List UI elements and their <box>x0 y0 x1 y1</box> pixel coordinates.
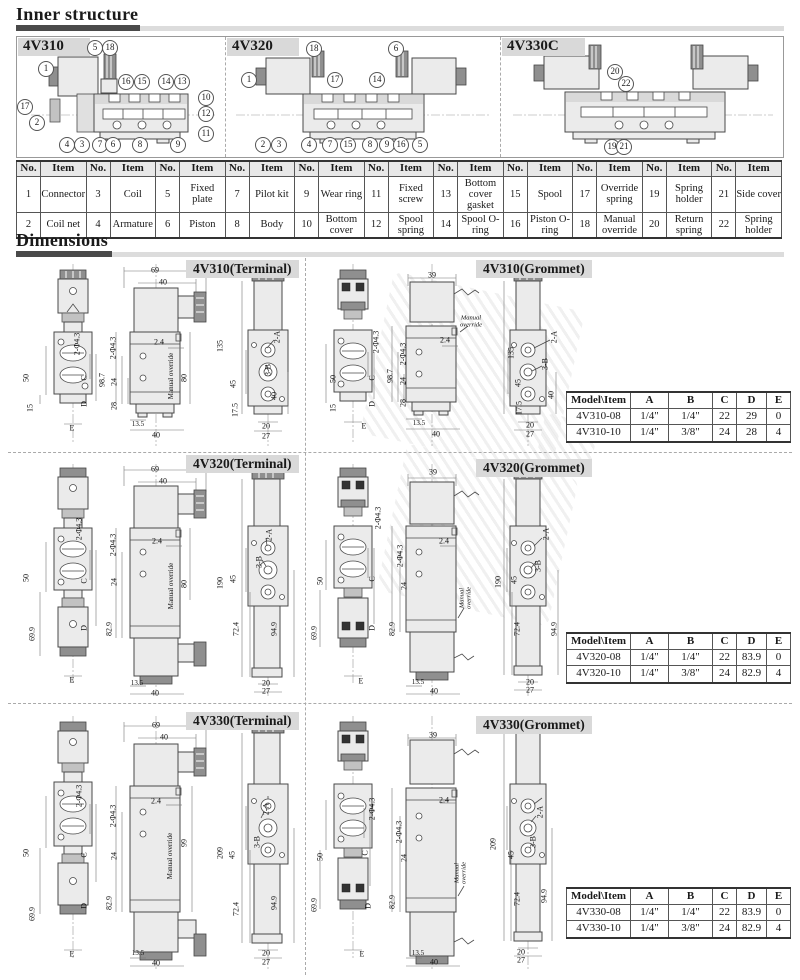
table-cell: 0 <box>766 650 790 666</box>
column-header: C <box>712 888 736 905</box>
table-cell: 1/4" <box>668 650 712 666</box>
dim-label: 39 <box>429 468 437 477</box>
model-table-4v310: Model\ItemABCDE4V310-081/4"1/4"222904V31… <box>566 391 791 443</box>
heading-bar-dark <box>16 25 140 31</box>
callout-13: 13 <box>174 74 190 90</box>
table-cell: 17 <box>573 176 597 212</box>
table-cell: 24 <box>712 666 736 683</box>
table-cell: 1 <box>17 176 41 212</box>
dim-label: 80 <box>180 580 189 588</box>
table-cell: 0 <box>766 409 790 425</box>
column-header: No. <box>295 161 319 176</box>
dim-label: 13.5 <box>132 949 144 957</box>
dim-label: 2-A <box>265 529 274 541</box>
callout-6: 6 <box>388 41 404 57</box>
table-cell: 83.9 <box>736 650 766 666</box>
dim-label: 40 <box>159 477 167 486</box>
callout-17: 17 <box>17 99 33 115</box>
dim-label: 72.4 <box>513 892 522 906</box>
panel-title-4v310-terminal: 4V310(Terminal) <box>186 260 299 278</box>
table-cell: Piston O-ring <box>527 212 573 238</box>
panel-title-4v320-terminal: 4V320(Terminal) <box>186 455 299 473</box>
section-title-inner-structure: Inner structure <box>16 4 138 25</box>
table-cell: 9 <box>295 176 319 212</box>
callout-4: 4 <box>301 137 317 153</box>
panel-separator-vertical <box>305 258 306 975</box>
callout-18: 18 <box>306 41 322 57</box>
table-row: 4V310-081/4"1/4"22290 <box>567 409 791 425</box>
diagram-label: 4V310 <box>18 38 90 56</box>
callout-2: 2 <box>255 137 271 153</box>
dim-label: 2.4 <box>151 797 161 806</box>
dim-label: 24 <box>110 852 119 860</box>
table-cell: 82.9 <box>736 666 766 683</box>
table-cell: 10 <box>295 212 319 238</box>
dim-label: 27 <box>517 956 525 965</box>
dimension-drawing <box>308 258 560 452</box>
table-cell: Spool spring <box>388 212 434 238</box>
dim-label: 82.9 <box>105 622 114 636</box>
callout-12: 12 <box>198 106 214 122</box>
column-header: No. <box>712 161 736 176</box>
dim-label: 45 <box>229 575 238 583</box>
table-cell: Fixed plate <box>180 176 226 212</box>
dim-label: 94.9 <box>270 622 279 636</box>
inner-structure-box: 4V310 15181721615141 <box>16 36 784 158</box>
model-table-4v320: Model\ItemABCDE4V320-081/4"1/4"2283.904V… <box>566 632 791 684</box>
column-header: E <box>766 888 790 905</box>
callout-16: 16 <box>118 74 134 90</box>
dim-label: 2-Φ4.3 <box>109 805 118 828</box>
table-cell: 1/4" <box>630 666 668 683</box>
diagram-label: 4V320 <box>227 38 299 56</box>
callout-15: 15 <box>134 74 150 90</box>
dim-label: 24 <box>399 377 408 385</box>
callout-2: 2 <box>29 115 45 131</box>
callout-22: 22 <box>618 76 634 92</box>
table-cell: 15 <box>503 176 527 212</box>
dim-label: 135 <box>216 340 225 352</box>
dim-label: 82.9 <box>388 622 397 636</box>
table-cell: 21 <box>712 176 736 212</box>
dim-label: 20 <box>526 421 534 430</box>
table-cell: 18 <box>573 212 597 238</box>
dim-label: 2-Φ4.3 <box>109 337 118 360</box>
callout-8: 8 <box>132 137 148 153</box>
dim-label: D <box>368 401 377 407</box>
table-cell: 3/8" <box>668 921 712 938</box>
dim-label: 72.4 <box>232 902 241 916</box>
table-row: 2Coil net4Armature6Piston8Body10Bottom c… <box>17 212 782 238</box>
table-cell: Spring holder <box>736 212 782 238</box>
dim-label: 15 <box>329 404 338 412</box>
dim-label: 27 <box>262 958 270 967</box>
callout-18: 18 <box>102 40 118 56</box>
dim-label: E <box>359 677 364 686</box>
dim-label: 69.9 <box>310 898 319 912</box>
dim-label: 3-B <box>253 836 262 848</box>
dim-label: 2.4 <box>439 537 449 546</box>
callout-9: 9 <box>170 137 186 153</box>
column-header: E <box>766 392 790 409</box>
dim-label: 13.5 <box>131 679 143 687</box>
dim-label: 27 <box>526 430 534 439</box>
dim-label: 13.5 <box>132 420 144 428</box>
callout-1: 1 <box>38 61 54 77</box>
table-cell: 24 <box>712 921 736 938</box>
callout-21: 21 <box>616 139 632 155</box>
dim-label: 99 <box>180 839 189 847</box>
table-cell: 4 <box>766 666 790 683</box>
dim-label: 13.5 <box>412 949 424 957</box>
dim-label: 2.4 <box>440 336 450 345</box>
table-cell: Spool <box>527 176 573 212</box>
dim-label: 69 <box>152 721 160 730</box>
dim-label: 2.4 <box>439 796 449 805</box>
table-cell: 1/4" <box>630 905 668 921</box>
table-cell: Body <box>249 212 295 238</box>
dim-label: 50 <box>22 574 31 582</box>
dim-label: 2-Φ4.3 <box>368 798 377 821</box>
table-cell: 19 <box>642 176 666 212</box>
dim-label: 3-B <box>255 556 264 568</box>
dim-label: 2-A <box>273 331 282 343</box>
table-row: 4V310-101/4"3/8"24284 <box>567 425 791 442</box>
dim-label: Manual override <box>167 353 175 399</box>
column-header: D <box>736 633 766 650</box>
dim-label: C <box>368 576 377 581</box>
dim-label: 98.7 <box>98 373 107 387</box>
dim-label: Manual override <box>460 316 482 329</box>
callout-5: 5 <box>87 40 103 56</box>
dim-label: D <box>80 401 89 407</box>
table-cell: 1/4" <box>630 409 668 425</box>
dim-label: Manual override <box>167 563 175 609</box>
panel-title-4v310-grommet: 4V310(Grommet) <box>476 260 592 278</box>
dim-label: C <box>368 375 377 380</box>
diagram-4v330c: 4V330C 2022 <box>500 37 783 157</box>
dim-label: Manual override <box>166 833 174 879</box>
dim-label: 13.5 <box>413 419 425 427</box>
column-header: Item <box>180 161 226 176</box>
column-header: Item <box>458 161 504 176</box>
section-title-dimensions: Dimensions <box>16 230 108 251</box>
callout-10: 10 <box>198 90 214 106</box>
table-cell: 83.9 <box>736 905 766 921</box>
column-header: No. <box>434 161 458 176</box>
column-header: E <box>766 633 790 650</box>
column-header: Item <box>319 161 365 176</box>
panel-title-4v330-grommet: 4V330(Grommet) <box>476 716 592 734</box>
dim-label: 40 <box>152 431 160 440</box>
callout-11: 11 <box>198 126 214 142</box>
table-cell: 22 <box>712 905 736 921</box>
table-cell: 13 <box>434 176 458 212</box>
dim-label: C <box>80 852 89 857</box>
dim-label: 40 <box>432 430 440 439</box>
table-cell: 6 <box>156 212 180 238</box>
dimension-panel-4v330-grommet: 392-Φ4.350C69.9DE2-Φ4.32482.92.4Manual o… <box>308 708 560 976</box>
dim-label: 72.4 <box>232 622 241 636</box>
dim-label: 50 <box>329 375 338 383</box>
dim-label: 2.4 <box>152 537 162 546</box>
dim-label: 45 <box>507 851 516 859</box>
column-header: A <box>630 633 668 650</box>
table-cell: 11 <box>364 176 388 212</box>
table-cell: Override spring <box>597 176 643 212</box>
column-header: Item <box>388 161 434 176</box>
callout-15: 15 <box>340 137 356 153</box>
catalog-page: Inner structure 4V310 <box>0 0 800 980</box>
table-cell: 3/8" <box>668 425 712 442</box>
dim-label: 2-Φ4.3 <box>109 534 118 557</box>
dim-label: 27 <box>262 432 270 441</box>
callout-5: 5 <box>412 137 428 153</box>
dim-label: 2-A <box>542 528 551 540</box>
table-cell: Wear ring <box>319 176 365 212</box>
callout-17: 17 <box>327 72 343 88</box>
table-cell: Connector <box>41 176 87 212</box>
column-header: A <box>630 888 668 905</box>
column-header: Item <box>41 161 87 176</box>
dim-label: 94.9 <box>270 896 279 910</box>
diagram-4v310: 4V310 15181721615141 <box>17 37 225 157</box>
dim-label: 50 <box>316 577 325 585</box>
dim-label: 40 <box>430 687 438 696</box>
table-cell: 4V330-08 <box>567 905 631 921</box>
dim-label: 40 <box>152 959 160 968</box>
table-cell: 22 <box>712 409 736 425</box>
dim-label: 40 <box>270 392 279 400</box>
callout-7: 7 <box>322 137 338 153</box>
table-cell: 1/4" <box>668 905 712 921</box>
table-cell: 4V310-10 <box>567 425 631 442</box>
table-row: 1Connector3Coil5Fixed plate7Pilot kit9We… <box>17 176 782 212</box>
table-cell: 22 <box>712 650 736 666</box>
table-cell: 1/4" <box>630 921 668 938</box>
table-cell: Bottom cover gasket <box>458 176 504 212</box>
dim-label: D <box>364 903 373 909</box>
dim-label: D <box>368 625 377 631</box>
table-cell: 16 <box>503 212 527 238</box>
table-cell: 22 <box>712 212 736 238</box>
table-cell: 1/4" <box>668 409 712 425</box>
table-cell: 0 <box>766 905 790 921</box>
table-cell: Bottom cover <box>319 212 365 238</box>
column-header: Item <box>736 161 782 176</box>
callout-14: 14 <box>158 74 174 90</box>
dim-label: D <box>80 903 89 909</box>
dim-label: 45 <box>228 851 237 859</box>
table-cell: Coil <box>110 176 156 212</box>
dim-label: 69 <box>151 266 159 275</box>
dim-label: E <box>70 950 75 959</box>
dim-label: 135 <box>507 347 516 359</box>
dimension-drawing <box>16 458 302 702</box>
column-header: No. <box>573 161 597 176</box>
dim-label: 40 <box>160 733 168 742</box>
dim-label: 20 <box>262 422 270 431</box>
dim-label: 94.9 <box>540 889 549 903</box>
dim-label: 190 <box>494 576 503 588</box>
heading-bar-dark <box>16 251 112 257</box>
dim-label: 2-Φ4.3 <box>372 331 381 354</box>
column-header: No. <box>225 161 249 176</box>
dim-label: 50 <box>316 853 325 861</box>
table-cell: 1/4" <box>630 650 668 666</box>
dim-label: 50 <box>22 849 31 857</box>
dim-label: 69.9 <box>28 627 37 641</box>
dim-label: E <box>70 424 75 433</box>
dim-label: 2-Φ4.3 <box>396 545 405 568</box>
heading-bar-light <box>112 252 784 257</box>
dim-label: 2-A <box>550 331 559 343</box>
callout-4: 4 <box>59 137 75 153</box>
dim-label: C <box>80 375 89 380</box>
dim-label: 69.9 <box>310 626 319 640</box>
dim-label: 82.9 <box>105 896 114 910</box>
column-header: A <box>630 392 668 409</box>
dim-label: 13.5 <box>412 678 424 686</box>
dim-label: 40 <box>430 958 438 967</box>
dim-label: 2-Φ4.3 <box>395 821 404 844</box>
dimension-panel-4v310-terminal: 69402-Φ4.35015CDE2-Φ4.398.724282.4Manual… <box>16 258 302 452</box>
dimension-drawing <box>308 458 560 702</box>
dimension-drawing <box>16 258 302 452</box>
diagram-label: 4V330C <box>502 38 585 56</box>
dim-label: 20 <box>262 949 270 958</box>
column-header: D <box>736 888 766 905</box>
table-cell: Spring holder <box>666 176 712 212</box>
table-cell: 4V310-08 <box>567 409 631 425</box>
dim-label: 209 <box>216 847 225 859</box>
column-header: Item <box>110 161 156 176</box>
dim-label: 2-A <box>262 803 271 815</box>
column-header: D <box>736 392 766 409</box>
column-header: No. <box>156 161 180 176</box>
table-cell: Fixed screw <box>388 176 434 212</box>
dim-label: 24 <box>400 854 409 862</box>
dimension-panel-4v310-grommet: 392-Φ4.35015CDE2-Φ4.398.724282.4Manual o… <box>308 258 560 452</box>
column-header: Item <box>597 161 643 176</box>
dim-label: 24 <box>400 582 409 590</box>
table-cell: 4V330-10 <box>567 921 631 938</box>
column-header: Model\Item <box>567 633 631 650</box>
table-cell: 14 <box>434 212 458 238</box>
dim-label: 45 <box>514 379 523 387</box>
dim-label: Manual override <box>460 587 473 609</box>
column-header: B <box>668 633 712 650</box>
column-header: C <box>712 633 736 650</box>
table-cell: Spool O-ring <box>458 212 504 238</box>
column-header: No. <box>503 161 527 176</box>
column-header: Item <box>666 161 712 176</box>
callout-6: 6 <box>105 137 121 153</box>
dim-label: 39 <box>429 731 437 740</box>
dim-label: 40 <box>151 689 159 698</box>
callout-3: 3 <box>74 137 90 153</box>
column-header: Model\Item <box>567 888 631 905</box>
dim-label: 40 <box>159 278 167 287</box>
heading-bar-light <box>140 26 784 31</box>
dim-label: 2-Φ4.3 <box>75 518 84 541</box>
dim-label: 69.9 <box>28 907 37 921</box>
column-header: No. <box>364 161 388 176</box>
dim-label: 94.9 <box>550 622 559 636</box>
dim-label: 80 <box>180 374 189 382</box>
column-header: No. <box>642 161 666 176</box>
dim-label: 69 <box>151 465 159 474</box>
parts-table: No.ItemNo.ItemNo.ItemNo.ItemNo.ItemNo.It… <box>16 160 782 239</box>
table-cell: 82.9 <box>736 921 766 938</box>
dim-label: 40 <box>547 391 556 399</box>
dim-label: 17.5 <box>231 403 240 417</box>
table-cell: 28 <box>736 425 766 442</box>
callout-3: 3 <box>271 137 287 153</box>
table-cell: Return spring <box>666 212 712 238</box>
dim-label: 82.9 <box>388 895 397 909</box>
dim-label: 50 <box>22 374 31 382</box>
column-header: B <box>668 888 712 905</box>
dim-label: 98.7 <box>386 369 395 383</box>
dim-label: 209 <box>489 838 498 850</box>
table-row: 4V320-081/4"1/4"2283.90 <box>567 650 791 666</box>
table-cell: 7 <box>225 176 249 212</box>
dim-label: D <box>80 625 89 631</box>
dim-label: 28 <box>399 399 408 407</box>
callout-16: 16 <box>393 137 409 153</box>
panel-separator-horizontal <box>8 452 792 453</box>
panel-separator-horizontal <box>8 703 792 704</box>
table-cell: 8 <box>225 212 249 238</box>
column-header: B <box>668 392 712 409</box>
dim-label: 190 <box>216 577 225 589</box>
dim-label: 17.5 <box>515 401 524 415</box>
panel-title-4v320-grommet: 4V320(Grommet) <box>476 459 592 477</box>
column-header: Item <box>249 161 295 176</box>
dim-label: 45 <box>510 576 519 584</box>
dim-label: C <box>361 850 370 855</box>
dim-label: 24 <box>110 578 119 586</box>
table-cell: 4 <box>766 425 790 442</box>
dim-label: 15 <box>26 404 35 412</box>
dim-label: E <box>360 950 365 959</box>
dimension-panel-4v330-terminal: 69402-Φ4.350C69.9DE2-Φ4.32482.92.4Manual… <box>16 708 302 976</box>
dim-label: 72.4 <box>513 622 522 636</box>
dim-label: Manual override <box>455 862 468 884</box>
column-header: Model\Item <box>567 392 631 409</box>
dim-label: 45 <box>229 380 238 388</box>
dim-label: C <box>80 578 89 583</box>
callout-14: 14 <box>369 72 385 88</box>
table-row: 4V330-101/4"3/8"2482.94 <box>567 921 791 938</box>
table-cell: 20 <box>642 212 666 238</box>
panel-title-4v330-terminal: 4V330(Terminal) <box>186 712 299 730</box>
dim-label: 2-A <box>536 806 545 818</box>
table-cell: 29 <box>736 409 766 425</box>
table-cell: 3 <box>86 176 110 212</box>
model-table-4v330: Model\ItemABCDE4V330-081/4"1/4"2283.904V… <box>566 887 791 939</box>
dim-label: 27 <box>262 687 270 696</box>
table-cell: 4V320-08 <box>567 650 631 666</box>
dim-label: 2-Φ4.3 <box>75 785 84 808</box>
dim-label: 2.4 <box>154 338 164 347</box>
diagram-4v320: 4V320 <box>225 37 500 157</box>
table-cell: 3/8" <box>668 666 712 683</box>
dimension-panel-4v320-terminal: 69402-Φ4.350C69.9DE2-Φ4.32482.92.4Manual… <box>16 458 302 702</box>
dim-label: 3-B <box>541 358 550 370</box>
table-cell: Side cover <box>736 176 782 212</box>
